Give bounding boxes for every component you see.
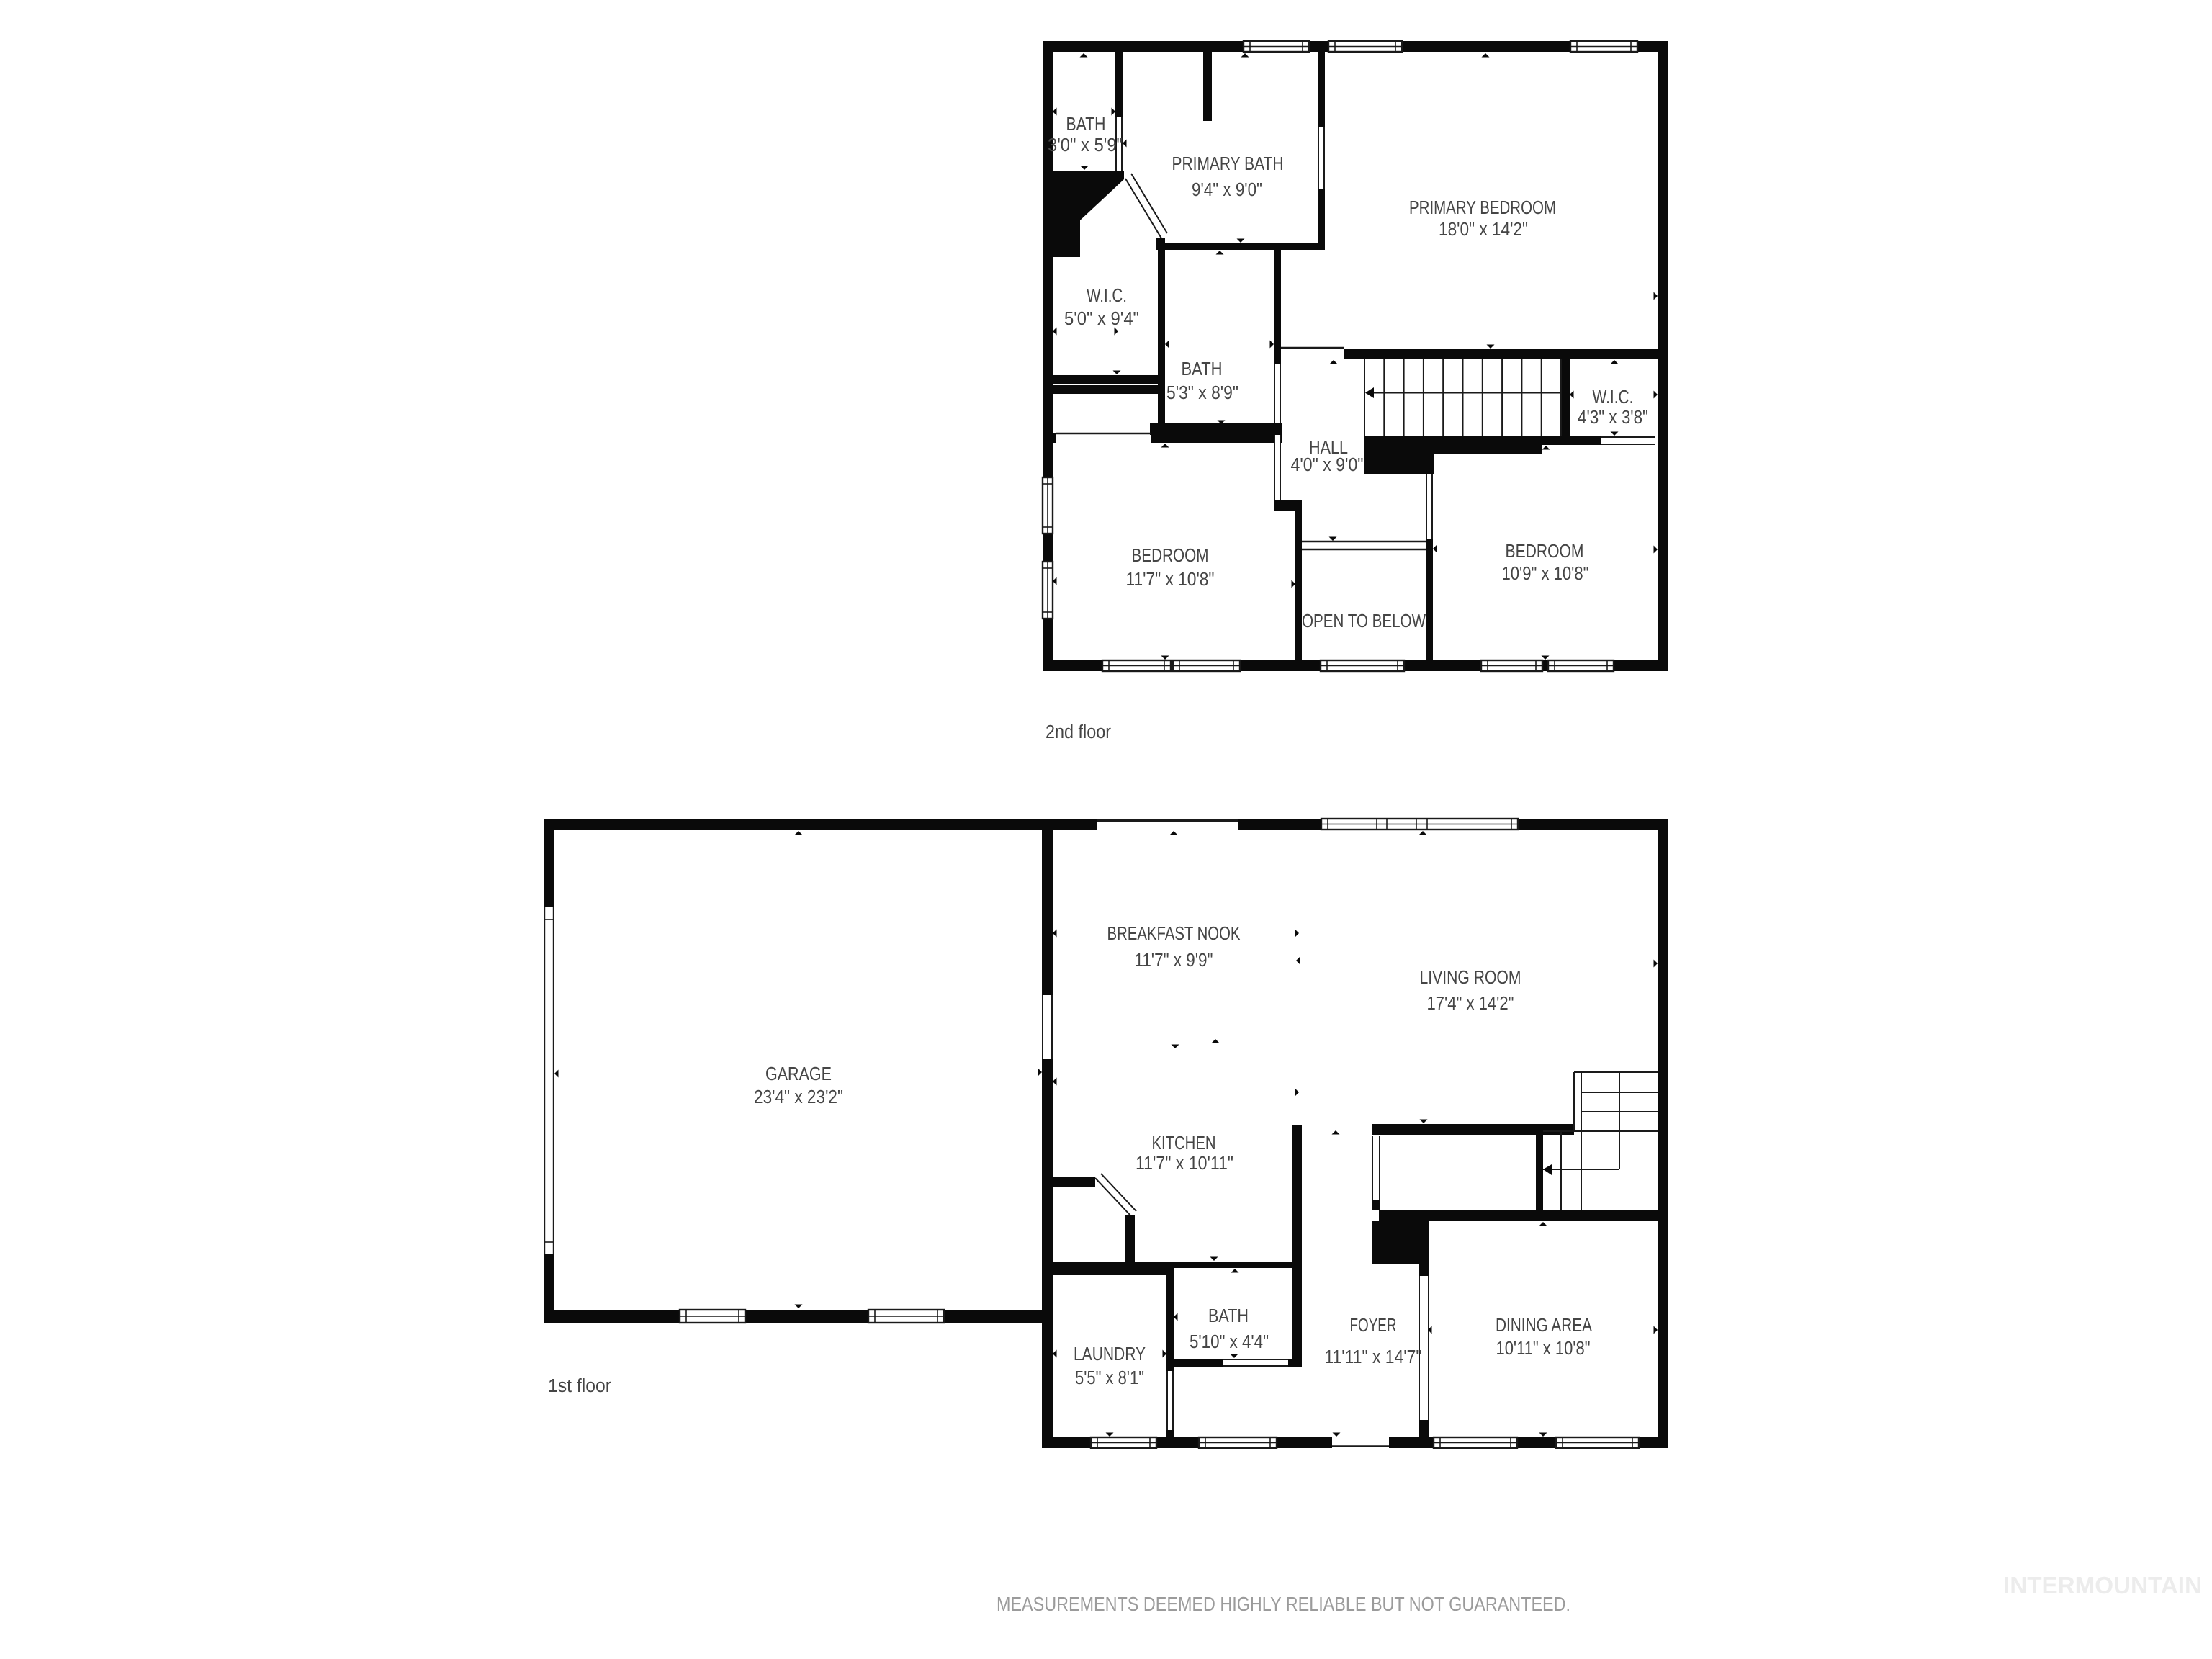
svg-text:BEDROOM: BEDROOM [1132,546,1209,566]
svg-text:1st floor: 1st floor [548,1376,611,1396]
svg-text:BATH: BATH [1066,114,1106,135]
svg-text:PRIMARY BEDROOM: PRIMARY BEDROOM [1409,198,1556,218]
svg-text:10'9" x 10'8": 10'9" x 10'8" [1502,564,1589,584]
svg-text:BEDROOM: BEDROOM [1506,541,1584,562]
svg-text:KITCHEN: KITCHEN [1152,1133,1216,1154]
svg-text:9'4" x 9'0": 9'4" x 9'0" [1192,180,1262,200]
svg-text:FOYER: FOYER [1350,1316,1397,1336]
svg-text:MEASUREMENTS DEEMED HIGHLY REL: MEASUREMENTS DEEMED HIGHLY RELIABLE BUT … [997,1593,1570,1615]
svg-text:3'0" x 5'9": 3'0" x 5'9" [1048,135,1123,156]
svg-text:2nd floor: 2nd floor [1046,722,1111,742]
svg-text:11'7" x 9'9": 11'7" x 9'9" [1135,950,1213,971]
svg-text:11'7" x 10'11": 11'7" x 10'11" [1136,1154,1233,1174]
svg-text:LIVING ROOM: LIVING ROOM [1420,968,1521,988]
svg-text:23'4" x 23'2": 23'4" x 23'2" [754,1087,843,1107]
svg-text:11'11" x 14'7": 11'11" x 14'7" [1325,1347,1422,1367]
svg-text:17'4" x 14'2": 17'4" x 14'2" [1427,994,1514,1014]
svg-text:5'0" x 9'4": 5'0" x 9'4" [1064,309,1139,329]
svg-text:18'0" x 14'2": 18'0" x 14'2" [1439,220,1528,240]
svg-text:4'3" x 3'8": 4'3" x 3'8" [1578,408,1648,428]
svg-text:5'5" x 8'1": 5'5" x 8'1" [1075,1368,1144,1388]
svg-text:11'7" x 10'8": 11'7" x 10'8" [1126,570,1215,590]
svg-text:INTERMOUNTAIN: INTERMOUNTAIN [2003,1572,2202,1599]
svg-text:W.I.C.: W.I.C. [1087,286,1127,306]
svg-text:GARAGE: GARAGE [765,1064,832,1084]
svg-text:DINING AREA: DINING AREA [1496,1316,1592,1336]
svg-text:BATH: BATH [1208,1306,1249,1326]
svg-text:LAUNDRY: LAUNDRY [1074,1344,1146,1364]
svg-text:PRIMARY BATH: PRIMARY BATH [1172,154,1284,174]
svg-text:5'3" x 8'9": 5'3" x 8'9" [1166,383,1238,403]
svg-text:5'10" x 4'4": 5'10" x 4'4" [1190,1332,1269,1352]
svg-text:4'0" x 9'0": 4'0" x 9'0" [1291,455,1364,475]
svg-text:OPEN TO BELOW: OPEN TO BELOW [1302,611,1426,631]
svg-text:W.I.C.: W.I.C. [1593,387,1634,408]
svg-text:BREAKFAST NOOK: BREAKFAST NOOK [1107,924,1241,944]
svg-text:10'11" x 10'8": 10'11" x 10'8" [1496,1339,1591,1359]
svg-text:BATH: BATH [1182,359,1223,379]
